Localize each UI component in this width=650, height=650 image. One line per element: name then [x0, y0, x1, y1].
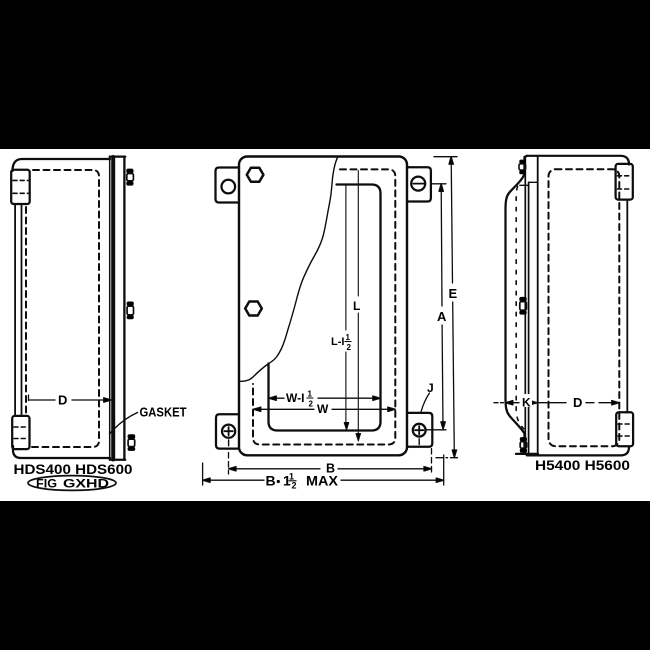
svg-text:2: 2	[309, 400, 314, 409]
svg-text:B: B	[266, 473, 276, 489]
svg-text:W: W	[317, 402, 329, 416]
svg-text:MAX: MAX	[306, 473, 339, 489]
svg-text:H5400 H5600: H5400 H5600	[535, 458, 630, 473]
svg-text:2: 2	[292, 481, 297, 491]
svg-text:E: E	[449, 286, 458, 301]
svg-text:1: 1	[308, 390, 313, 399]
svg-text:L-I: L-I	[331, 336, 344, 348]
svg-text:K: K	[522, 396, 531, 410]
svg-text:J: J	[427, 381, 434, 395]
svg-text:2: 2	[347, 343, 352, 352]
svg-text:A: A	[437, 309, 447, 324]
svg-text:1: 1	[346, 333, 351, 342]
svg-text:D: D	[58, 393, 67, 408]
svg-text:HDS400 HDS600: HDS400 HDS600	[14, 461, 133, 477]
svg-text:GASKET: GASKET	[140, 406, 187, 420]
svg-text:GXHD: GXHD	[63, 477, 109, 491]
svg-text:W-I: W-I	[286, 391, 304, 405]
svg-text:D: D	[573, 395, 582, 410]
svg-text:L: L	[353, 299, 360, 313]
svg-text:FIG: FIG	[36, 477, 57, 491]
